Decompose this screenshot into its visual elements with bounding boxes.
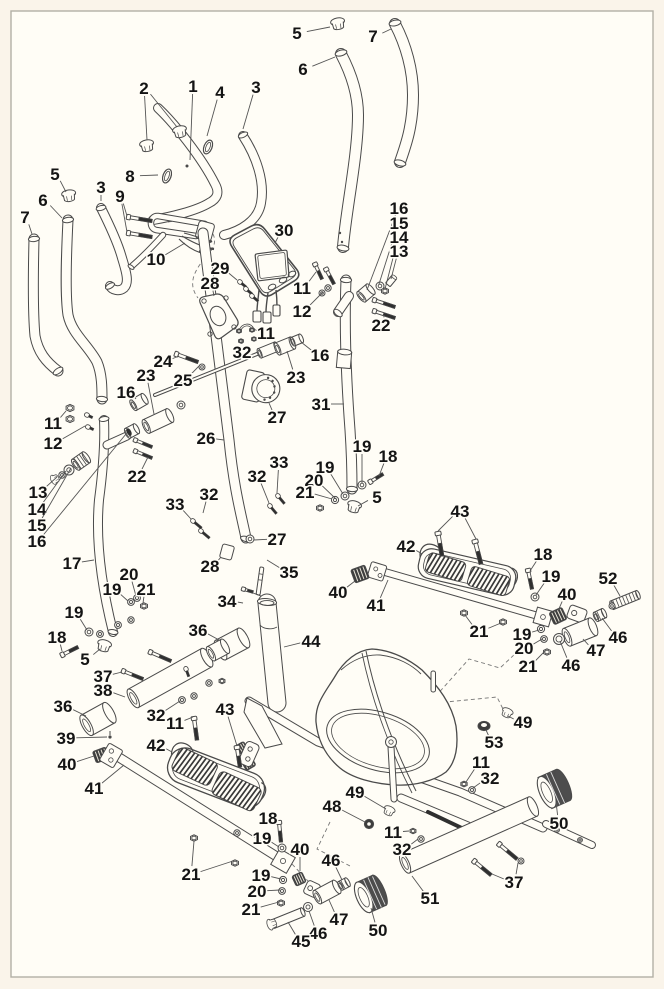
svg-text:19: 19 [253,829,272,848]
svg-text:39: 39 [57,729,76,748]
svg-text:21: 21 [519,657,538,676]
svg-text:17: 17 [63,554,82,573]
svg-text:5: 5 [50,165,59,184]
svg-text:21: 21 [137,580,156,599]
svg-text:4: 4 [215,83,225,102]
svg-text:10: 10 [147,250,166,269]
svg-text:11: 11 [166,714,184,733]
svg-text:46: 46 [562,656,581,675]
svg-text:47: 47 [330,910,349,929]
svg-text:53: 53 [485,733,504,752]
svg-text:50: 50 [369,921,388,940]
svg-text:42: 42 [147,736,166,755]
svg-text:42: 42 [397,537,416,556]
svg-text:3: 3 [96,178,105,197]
svg-text:46: 46 [309,924,328,943]
svg-text:43: 43 [451,502,470,521]
svg-text:16: 16 [117,383,136,402]
svg-text:34: 34 [218,592,237,611]
svg-text:45: 45 [292,932,311,951]
svg-text:21: 21 [296,483,315,502]
svg-text:11: 11 [257,324,275,343]
svg-text:6: 6 [298,60,307,79]
svg-text:21: 21 [182,865,201,884]
svg-text:20: 20 [515,639,534,658]
svg-text:21: 21 [470,622,489,641]
svg-text:12: 12 [293,302,312,321]
svg-text:52: 52 [599,569,618,588]
svg-text:18: 18 [48,628,67,647]
svg-text:31: 31 [312,395,331,414]
svg-text:25: 25 [174,371,193,390]
svg-text:16: 16 [311,346,330,365]
svg-text:32: 32 [248,467,267,486]
svg-text:30: 30 [275,221,294,240]
svg-text:23: 23 [137,366,156,385]
svg-text:18: 18 [379,447,398,466]
svg-text:38: 38 [94,681,113,700]
svg-text:5: 5 [372,488,381,507]
svg-text:44: 44 [302,632,321,651]
svg-text:40: 40 [329,583,348,602]
svg-text:28: 28 [201,274,220,293]
svg-text:28: 28 [201,557,220,576]
svg-text:8: 8 [125,167,134,186]
svg-text:24: 24 [154,352,173,371]
svg-text:47: 47 [587,641,606,660]
svg-text:32: 32 [200,485,219,504]
svg-text:21: 21 [242,900,261,919]
svg-text:49: 49 [514,713,533,732]
svg-text:50: 50 [550,814,569,833]
svg-text:32: 32 [147,706,166,725]
svg-text:1: 1 [188,77,197,96]
svg-text:27: 27 [268,530,287,549]
svg-text:33: 33 [166,495,185,514]
svg-text:49: 49 [346,783,365,802]
svg-text:23: 23 [287,368,306,387]
svg-text:7: 7 [20,208,29,227]
svg-text:40: 40 [291,840,310,859]
svg-text:32: 32 [393,840,412,859]
svg-text:5: 5 [80,650,89,669]
svg-text:26: 26 [197,429,216,448]
svg-text:2: 2 [139,79,148,98]
svg-text:11: 11 [44,414,62,433]
svg-text:22: 22 [128,467,147,486]
svg-text:7: 7 [368,27,377,46]
svg-text:11: 11 [293,279,311,298]
svg-text:41: 41 [367,596,386,615]
svg-text:33: 33 [270,453,289,472]
svg-text:19: 19 [353,437,372,456]
svg-text:13: 13 [390,242,409,261]
svg-text:43: 43 [216,700,235,719]
svg-text:40: 40 [58,755,77,774]
svg-text:35: 35 [280,563,299,582]
svg-text:12: 12 [44,434,63,453]
svg-text:19: 19 [65,603,84,622]
svg-text:22: 22 [372,316,391,335]
svg-text:9: 9 [115,187,124,206]
svg-text:51: 51 [421,889,440,908]
svg-text:48: 48 [323,797,342,816]
svg-text:6: 6 [38,191,47,210]
svg-text:32: 32 [481,769,500,788]
svg-text:18: 18 [259,809,278,828]
svg-text:16: 16 [28,532,47,551]
svg-text:40: 40 [558,585,577,604]
svg-text:27: 27 [268,408,287,427]
svg-text:5: 5 [292,24,301,43]
svg-text:41: 41 [85,779,104,798]
svg-text:32: 32 [233,343,252,362]
svg-text:46: 46 [609,628,628,647]
svg-text:3: 3 [251,78,260,97]
svg-text:19: 19 [103,580,122,599]
svg-text:46: 46 [322,851,341,870]
svg-text:37: 37 [505,873,524,892]
svg-text:36: 36 [54,697,73,716]
svg-text:19: 19 [542,567,561,586]
svg-text:18: 18 [534,545,553,564]
svg-text:20: 20 [248,882,267,901]
svg-text:36: 36 [189,621,208,640]
